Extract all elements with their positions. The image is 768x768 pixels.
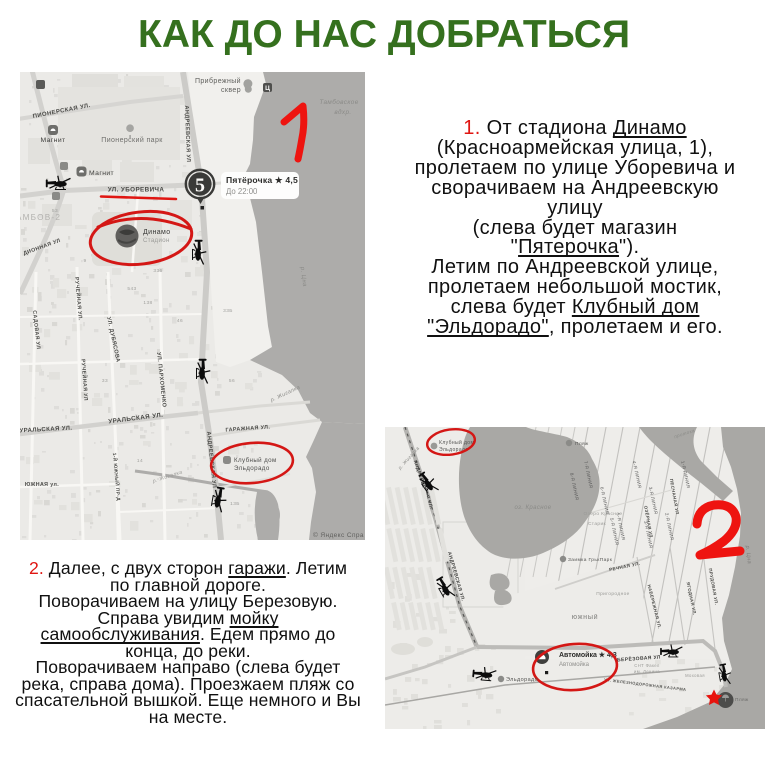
svg-text:ЮЖНЫЙ: ЮЖНЫЙ <box>572 613 598 621</box>
svg-text:ЮЖНАЯ ул.: ЮЖНАЯ ул. <box>25 482 59 488</box>
svg-text:33: 33 <box>102 378 108 384</box>
svg-text:33Б: 33Б <box>223 308 233 314</box>
svg-text:© Яндекс Спра: © Яндекс Спра <box>313 531 364 539</box>
svg-text:Эльдорадо: Эльдорадо <box>234 465 270 472</box>
svg-text:Магнит: Магнит <box>40 137 65 144</box>
svg-text:Динамо: Динамо <box>143 229 171 236</box>
svg-text:9: 9 <box>83 258 86 264</box>
svg-text:138: 138 <box>143 300 152 306</box>
svg-text:УЛ. УБОРЕВИЧА: УЛ. УБОРЕВИЧА <box>108 187 165 194</box>
svg-text:Пляж: Пляж <box>735 697 749 703</box>
svg-text:543: 543 <box>127 286 136 292</box>
svg-text:13Б: 13Б <box>230 501 240 507</box>
svg-text:Пионерский парк: Пионерский парк <box>101 136 163 144</box>
svg-text:Автомойка: Автомойка <box>559 661 590 668</box>
svg-text:Клубный дом: Клубный дом <box>439 439 474 446</box>
svg-text:Ц: Ц <box>265 85 270 92</box>
svg-text:Эльдорадо: Эльдорадо <box>506 677 538 683</box>
svg-text:До 22:00: До 22:00 <box>226 187 258 196</box>
svg-text:Пятёрочка ★ 4,5: Пятёрочка ★ 4,5 <box>226 175 298 185</box>
svg-text:46: 46 <box>177 318 183 324</box>
svg-text:Тамбовское: Тамбовское <box>319 98 358 106</box>
svg-text:Прибрежный: Прибрежный <box>195 77 241 85</box>
svg-text:Заимка ГрькПарк: Заимка ГрькПарк <box>568 557 613 563</box>
svg-text:56: 56 <box>229 378 235 384</box>
svg-text:53: 53 <box>52 208 58 214</box>
svg-text:вдхр.: вдхр. <box>334 108 351 116</box>
svg-text:336: 336 <box>153 268 162 274</box>
svg-text:СНТ Факел: СНТ Факел <box>634 663 660 668</box>
svg-text:оз. Красное: оз. Красное <box>515 505 552 511</box>
svg-text:Стадион: Стадион <box>143 238 170 244</box>
svg-text:сквер: сквер <box>221 87 241 94</box>
svg-text:5: 5 <box>195 175 205 197</box>
svg-text:Пригородное: Пригородное <box>596 591 630 597</box>
svg-text:Магнит: Магнит <box>89 170 114 177</box>
svg-text:14: 14 <box>137 458 143 464</box>
svg-text:им. Ленина: им. Ленина <box>634 669 660 674</box>
svg-text:АМБОВ-2: АМБОВ-2 <box>20 213 61 222</box>
svg-text:Старик: Старик <box>588 521 607 527</box>
svg-text:Озеро Красное: Озеро Красное <box>584 511 623 517</box>
svg-text:Пляж: Пляж <box>575 441 589 447</box>
svg-text:Клубный дом: Клубный дом <box>234 457 277 464</box>
svg-text:Моховая: Моховая <box>685 673 705 678</box>
